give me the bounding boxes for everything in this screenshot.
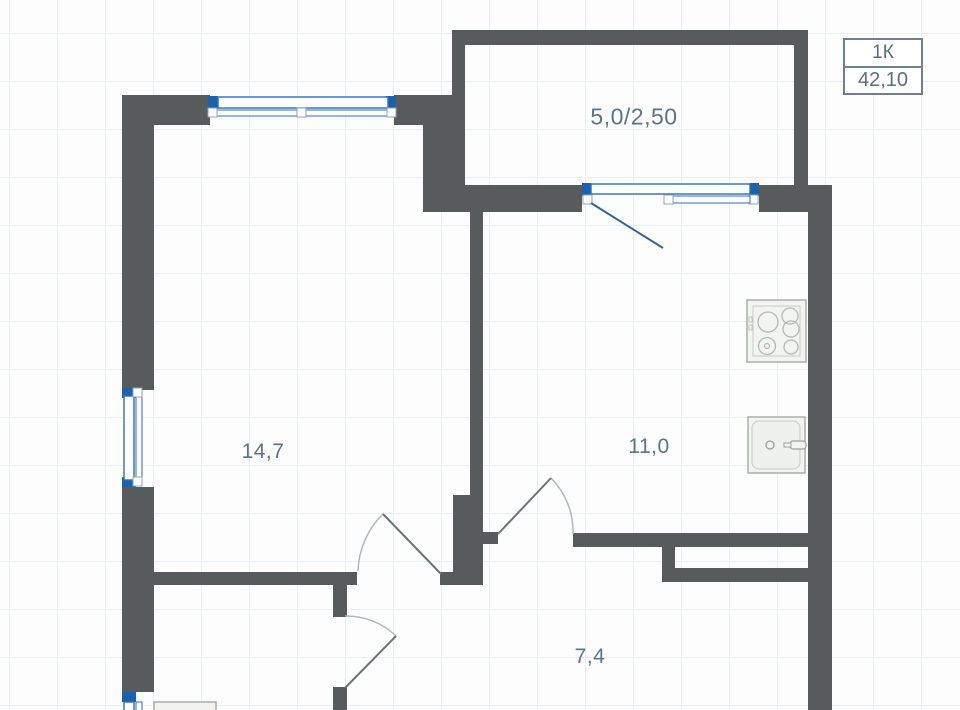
balcony-door-window-icon: [582, 183, 759, 248]
hallway-area-label: 7,4: [575, 645, 606, 669]
window-icon: [208, 96, 396, 117]
plan-graphics: [0, 0, 960, 710]
balcony-area-label: 5,0/2,50: [590, 104, 677, 131]
unit-total-area: 42,10: [845, 68, 921, 94]
washer-icon: [154, 702, 216, 710]
window-icon: [122, 388, 142, 487]
kitchen-area-label: 11,0: [628, 435, 669, 459]
sink-icon: [748, 417, 806, 473]
window-icon: [122, 692, 142, 710]
living-room-area-label: 14,7: [242, 440, 285, 464]
door-swing-icon: [498, 478, 573, 534]
floor-plan: 5,0/2,50 14,7 11,0 7,4 1К 42,10: [0, 0, 960, 710]
unit-legend: 1К 42,10: [843, 38, 923, 95]
door-swing-icon: [358, 514, 441, 574]
door-swing-icon: [345, 616, 396, 688]
stove-icon: [747, 300, 806, 362]
unit-type-label: 1К: [845, 40, 921, 68]
